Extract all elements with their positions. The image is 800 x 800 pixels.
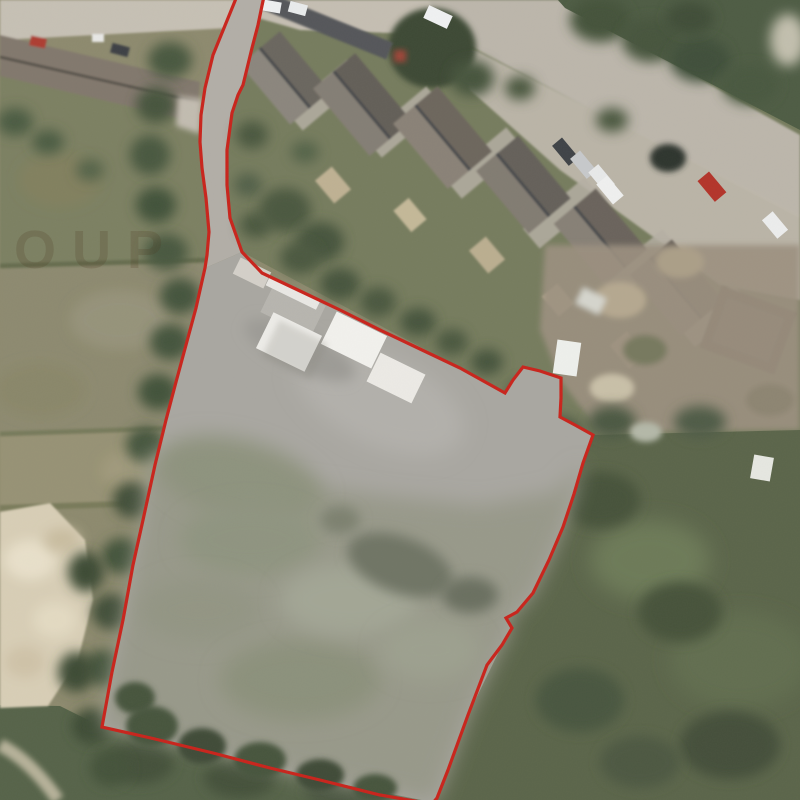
aerial-map-image: OUP [0, 0, 800, 800]
aerial-photo: OUP [0, 0, 800, 800]
photo-grain-overlay [0, 0, 800, 800]
